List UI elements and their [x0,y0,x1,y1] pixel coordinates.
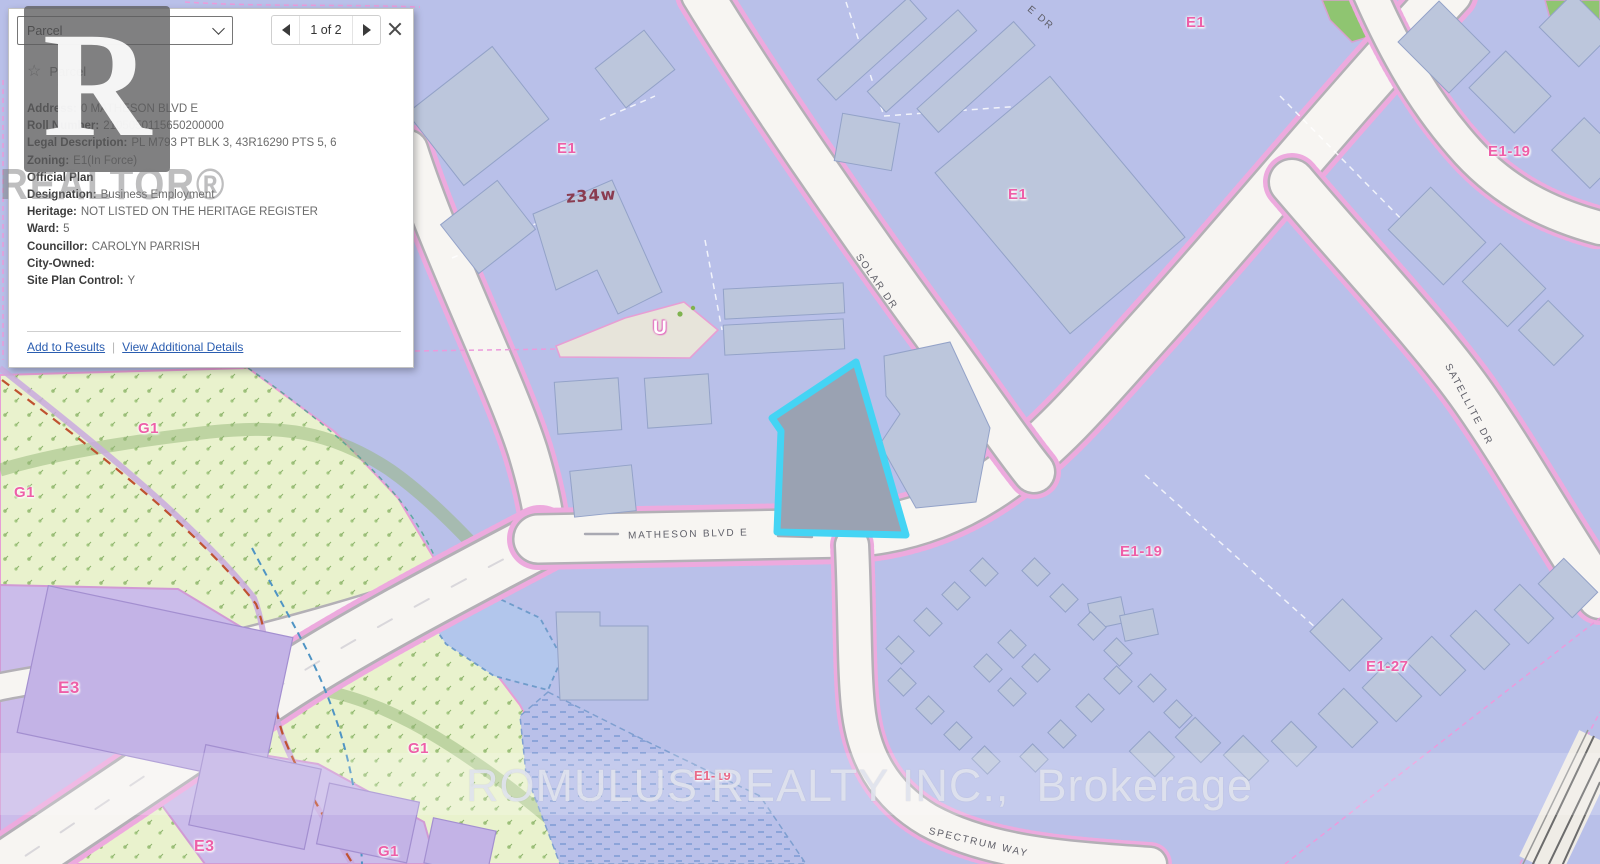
prev-result-button[interactable] [272,16,299,44]
zone-label: E1 [1186,14,1205,31]
view-additional-details-link[interactable]: View Additional Details [122,340,243,354]
pager-label: 1 of 2 [299,16,353,44]
realtor-wordmark-watermark: REALTOR® [0,160,226,210]
zone-label: E1-27 [1366,658,1409,675]
realtor-logo-letter: R [43,0,151,171]
popup-divider [27,331,401,332]
map-annotation-z34w: z34w [565,184,617,206]
result-pager: 1 of 2 [271,15,381,45]
field-site-plan-control: Site Plan Control:Y [27,273,407,290]
next-result-button[interactable] [353,16,380,44]
zone-label: E1-19 [1120,543,1163,560]
next-arrow-icon [363,24,371,36]
field-ward: Ward:5 [27,221,407,238]
zone-label: G1 [14,484,35,501]
zone-label: E1-19 [1488,143,1531,160]
realtor-logo-watermark: R [24,6,170,172]
zone-label: G1 [138,420,159,437]
add-to-results-link[interactable]: Add to Results [27,340,105,354]
zone-label: E1 [1008,186,1027,203]
chevron-down-icon [212,22,225,35]
field-councillor: Councillor:CAROLYN PARRISH [27,239,407,256]
zone-label: E1 [557,140,576,157]
link-separator: | [112,340,115,354]
zone-label: E3 [194,838,215,856]
map-application: E1 E1 E1 E1-19 E1-19 E1-19 E1-27 G1 G1 G… [0,0,1600,864]
zone-label: G1 [378,843,399,860]
field-city-owned: City-Owned: [27,256,407,273]
close-popup-button[interactable] [387,21,403,37]
zone-label: E3 [58,678,80,698]
watermark-brokerage: ROMULUS REALTY INC., Brokerage [466,760,1253,812]
prev-arrow-icon [282,24,290,36]
map-annotation-u: U [653,318,667,340]
